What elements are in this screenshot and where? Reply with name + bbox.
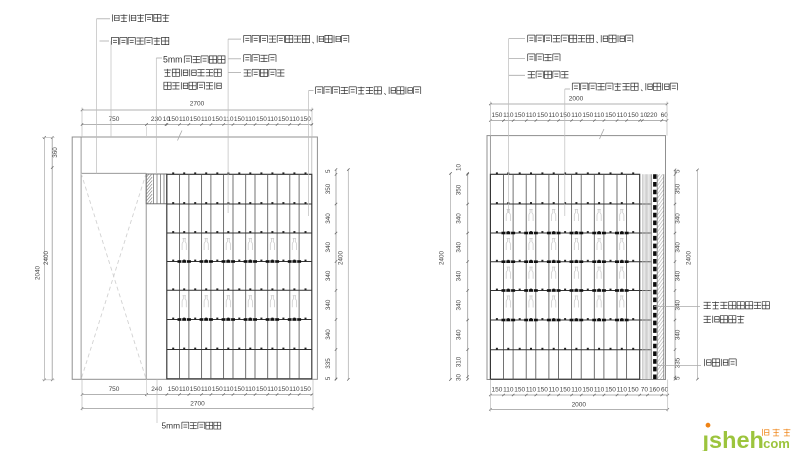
svg-text:150: 150	[168, 386, 179, 393]
svg-text:70: 70	[641, 387, 649, 394]
svg-text:110: 110	[617, 387, 628, 394]
svg-text:340: 340	[456, 329, 463, 340]
svg-text:350: 350	[325, 183, 332, 194]
svg-text:110: 110	[245, 386, 256, 393]
svg-text:340: 340	[325, 270, 332, 281]
svg-text:340: 340	[325, 329, 332, 340]
svg-text:110: 110	[201, 386, 212, 393]
svg-text:335: 335	[325, 358, 332, 369]
svg-text:110: 110	[201, 116, 212, 123]
svg-text:150: 150	[560, 387, 571, 394]
svg-text:340: 340	[456, 299, 463, 310]
svg-text:150: 150	[605, 112, 616, 119]
svg-text:750: 750	[109, 116, 120, 123]
svg-text:5: 5	[325, 169, 332, 173]
svg-text:150: 150	[582, 387, 593, 394]
svg-text:150: 150	[514, 112, 525, 119]
svg-text:340: 340	[675, 270, 682, 281]
svg-text:110: 110	[526, 112, 537, 119]
svg-text:150: 150	[234, 386, 245, 393]
svg-text:150: 150	[605, 387, 616, 394]
svg-text:.com: .com	[760, 436, 790, 451]
svg-text:2700: 2700	[190, 101, 205, 108]
svg-text:150: 150	[628, 387, 639, 394]
svg-text:110: 110	[594, 387, 605, 394]
svg-text:150: 150	[234, 116, 245, 123]
svg-text:220: 220	[646, 112, 657, 119]
svg-text:110: 110	[549, 387, 560, 394]
svg-text:10: 10	[456, 164, 463, 172]
svg-text:150: 150	[212, 116, 223, 123]
svg-text:2400: 2400	[686, 251, 693, 266]
svg-text:110: 110	[179, 116, 190, 123]
svg-text:2400: 2400	[43, 251, 50, 266]
svg-text:340: 340	[675, 242, 682, 253]
svg-text:340: 340	[325, 213, 332, 224]
svg-text:150: 150	[300, 386, 311, 393]
svg-text:2040: 2040	[35, 266, 42, 281]
svg-text:750: 750	[109, 386, 120, 393]
svg-text:30: 30	[456, 374, 463, 382]
svg-text:ȷsheh: ȷsheh	[702, 427, 764, 451]
svg-text:340: 340	[325, 241, 332, 252]
svg-text:110: 110	[289, 386, 300, 393]
svg-text:150: 150	[560, 112, 571, 119]
svg-text:340: 340	[675, 329, 682, 340]
svg-text:340: 340	[456, 213, 463, 224]
svg-text:340: 340	[675, 213, 682, 224]
svg-text:2000: 2000	[569, 96, 584, 103]
svg-text:360: 360	[52, 147, 59, 158]
svg-text:150: 150	[256, 386, 267, 393]
svg-text:150: 150	[537, 112, 548, 119]
svg-text:340: 340	[675, 299, 682, 310]
svg-text:340: 340	[456, 242, 463, 253]
svg-text:150: 150	[212, 386, 223, 393]
svg-text:350: 350	[456, 184, 463, 195]
svg-text:110: 110	[503, 387, 514, 394]
svg-text:110: 110	[571, 112, 582, 119]
svg-text:150: 150	[168, 116, 179, 123]
svg-text:150: 150	[300, 116, 311, 123]
svg-text:110: 110	[617, 112, 628, 119]
svg-text:2700: 2700	[190, 401, 205, 408]
svg-text:150: 150	[514, 387, 525, 394]
svg-text:5: 5	[675, 376, 682, 380]
svg-text:5mm: 5mm	[162, 420, 181, 430]
svg-text:160: 160	[649, 387, 660, 394]
svg-text:150: 150	[491, 387, 502, 394]
svg-text:150: 150	[190, 116, 201, 123]
svg-text:350: 350	[675, 183, 682, 194]
svg-text:110: 110	[289, 116, 300, 123]
svg-text:335: 335	[675, 357, 682, 368]
svg-text:150: 150	[537, 387, 548, 394]
svg-text:2400: 2400	[338, 251, 345, 266]
svg-text:110: 110	[267, 386, 278, 393]
svg-text:5: 5	[675, 169, 682, 173]
svg-text:5: 5	[325, 376, 332, 380]
svg-text:2000: 2000	[572, 402, 587, 409]
svg-text:110: 110	[267, 116, 278, 123]
svg-text:110: 110	[179, 386, 190, 393]
svg-text:2400: 2400	[439, 251, 446, 266]
svg-text:110: 110	[245, 116, 256, 123]
svg-text:110: 110	[223, 116, 234, 123]
svg-text:150: 150	[278, 386, 289, 393]
svg-text:340: 340	[325, 299, 332, 310]
svg-text:110: 110	[526, 387, 537, 394]
svg-text:110: 110	[571, 387, 582, 394]
svg-text:150: 150	[628, 112, 639, 119]
svg-text:150: 150	[491, 112, 502, 119]
svg-text:340: 340	[456, 270, 463, 281]
svg-text:5mm: 5mm	[163, 54, 182, 64]
svg-text:110: 110	[549, 112, 560, 119]
svg-text:110: 110	[594, 112, 605, 119]
svg-text:110: 110	[223, 386, 234, 393]
svg-text:150: 150	[256, 116, 267, 123]
svg-text:150: 150	[190, 386, 201, 393]
svg-text:150: 150	[582, 112, 593, 119]
svg-text:310: 310	[456, 356, 463, 367]
svg-text:150: 150	[278, 116, 289, 123]
